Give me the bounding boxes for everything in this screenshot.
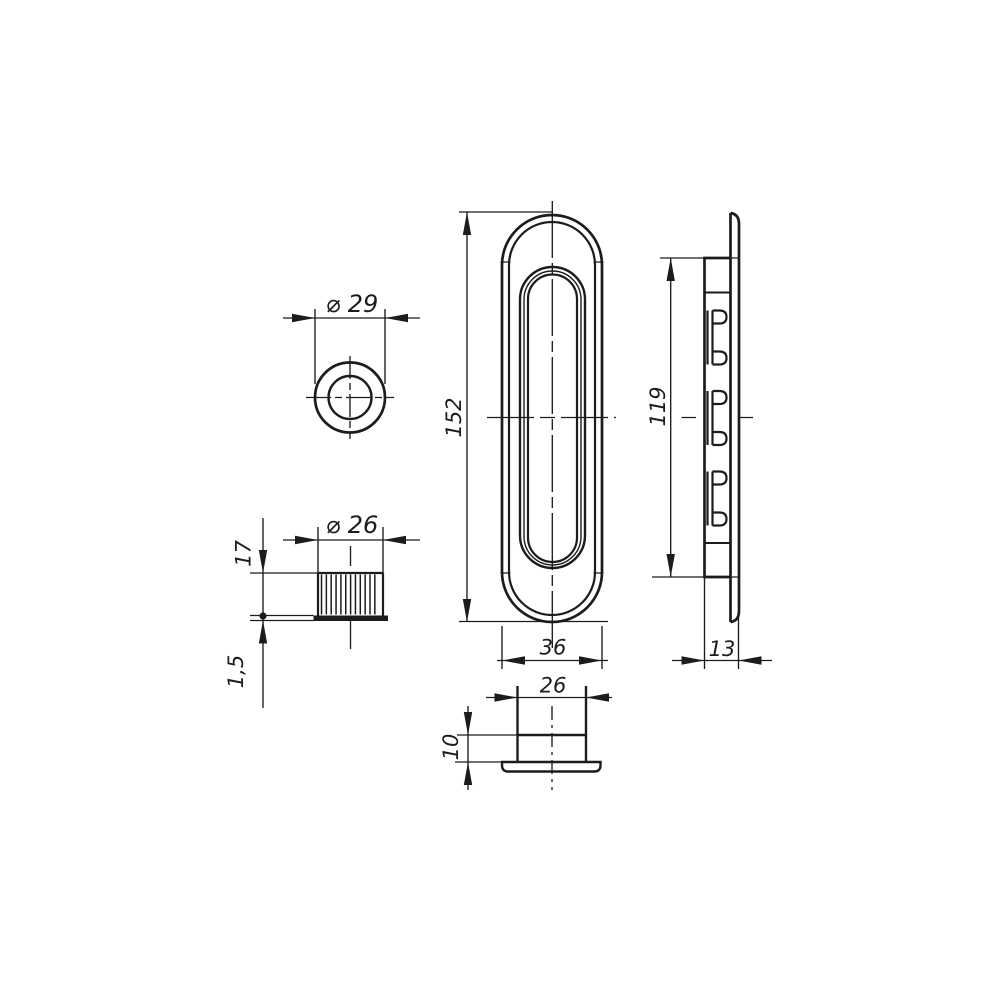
dim-label-knob-flange-thickness: 1,5	[224, 655, 248, 688]
arrowhead	[667, 554, 675, 577]
arrowhead	[383, 536, 406, 544]
arrowhead	[292, 314, 315, 322]
dim-label-knob-height: 17	[232, 540, 256, 567]
dimension-dot	[259, 612, 266, 619]
dim-label-knob-flange-diameter: ⌀ 29	[326, 290, 379, 318]
dim-label-knob-body-diameter: ⌀ 26	[326, 511, 379, 539]
spring-clip	[708, 311, 727, 365]
knurl-hatch	[322, 575, 375, 615]
arrowhead	[259, 621, 267, 644]
arrowhead	[586, 693, 609, 701]
spring-clip	[708, 472, 727, 526]
arrowhead	[463, 599, 471, 622]
technical-drawing-canvas: ⌀ 29 ⌀ 26 17 1,5 152 36	[0, 0, 1000, 1000]
face-plate-profile	[731, 213, 740, 622]
cup-flange	[502, 762, 601, 772]
side-view: 119 13	[646, 213, 772, 669]
knob-flange	[314, 616, 389, 622]
arrowhead	[579, 656, 602, 664]
arrowhead	[259, 550, 267, 573]
dim-label-cup-diameter: 26	[540, 674, 567, 698]
arrowhead	[502, 656, 525, 664]
arrowhead	[682, 656, 705, 664]
knob-top-view: ⌀ 29	[283, 290, 420, 439]
dim-label-cup-depth: 10	[439, 734, 463, 761]
arrowhead	[295, 536, 318, 544]
arrowhead	[464, 712, 472, 735]
arrowhead	[667, 258, 675, 281]
dim-label-handle-width: 36	[540, 636, 567, 660]
dim-label-handle-depth: 13	[709, 637, 736, 661]
drawing-sheet: ⌀ 29 ⌀ 26 17 1,5 152 36	[0, 0, 1000, 1000]
arrowhead	[495, 693, 518, 701]
spring-clip	[708, 391, 727, 445]
arrowhead	[385, 314, 408, 322]
arrowhead	[739, 656, 762, 664]
dim-label-cup-length: 119	[646, 386, 670, 426]
arrowhead	[464, 762, 472, 785]
cup-section-view: 26 10	[439, 674, 612, 791]
dim-label-handle-length: 152	[442, 397, 466, 437]
arrowhead	[463, 212, 471, 235]
front-view: 152 36	[442, 201, 616, 669]
